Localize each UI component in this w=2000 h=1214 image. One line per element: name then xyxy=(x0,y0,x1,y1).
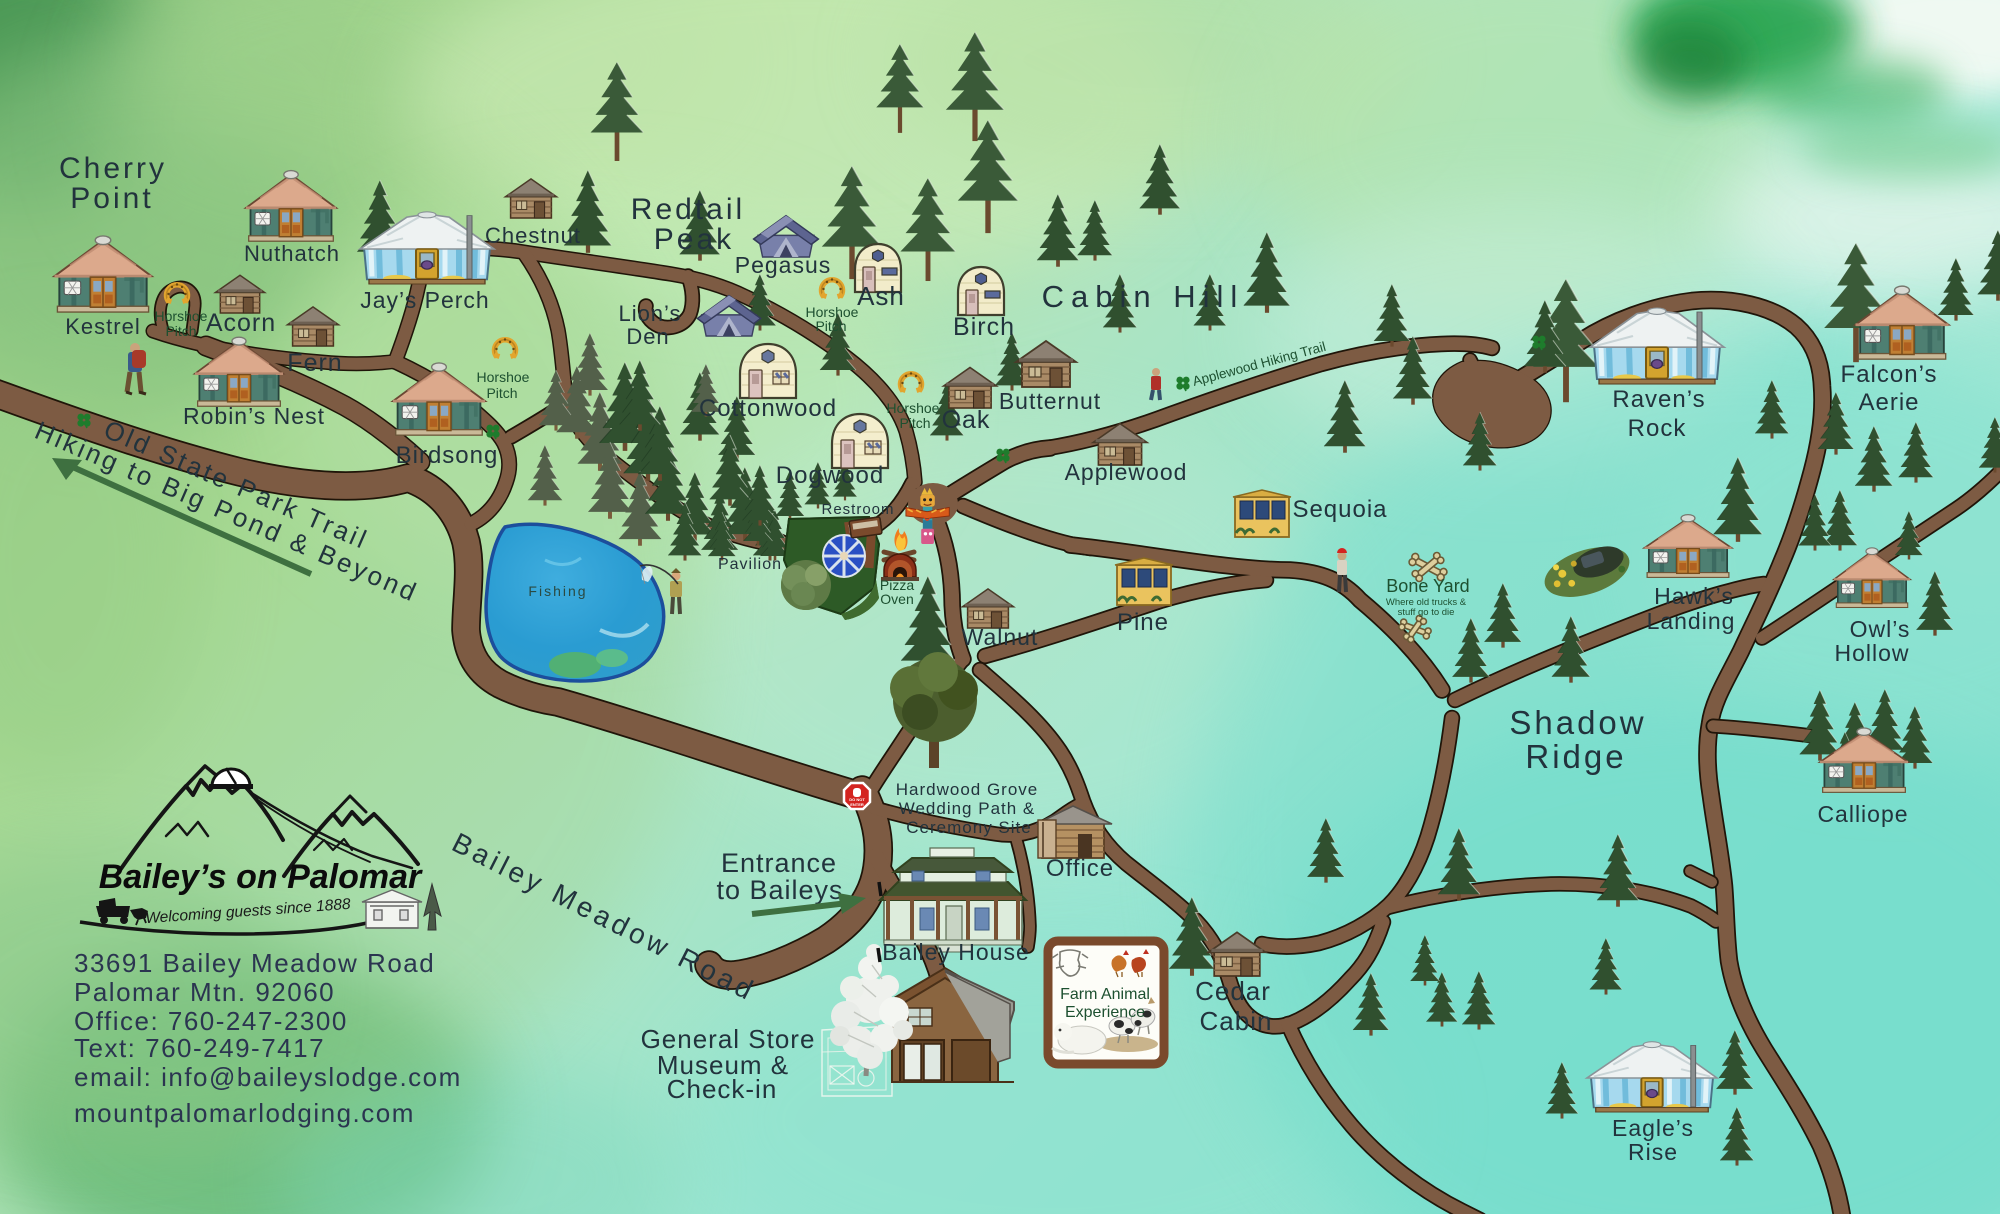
svg-text:Walnut: Walnut xyxy=(962,624,1039,650)
svg-text:Entrance: Entrance xyxy=(721,848,837,878)
svg-text:Owl’s: Owl’s xyxy=(1850,616,1911,642)
svg-text:Fern: Fern xyxy=(287,349,342,377)
svg-text:Ceremony Site: Ceremony Site xyxy=(906,818,1031,837)
svg-text:Experience: Experience xyxy=(1065,1004,1145,1021)
svg-text:Farm Animal: Farm Animal xyxy=(1060,986,1150,1003)
svg-text:Point: Point xyxy=(70,182,153,215)
svg-text:stuff go to die: stuff go to die xyxy=(1398,607,1455,618)
svg-text:Pitch: Pitch xyxy=(899,415,930,431)
svg-text:Bailey’s on Palomar: Bailey’s on Palomar xyxy=(99,858,423,896)
svg-text:Kestrel: Kestrel xyxy=(65,314,140,339)
svg-text:Applewood: Applewood xyxy=(1065,459,1188,485)
svg-text:Nuthatch: Nuthatch xyxy=(244,241,340,266)
svg-text:Check-in: Check-in xyxy=(667,1074,778,1104)
svg-text:Sequoia: Sequoia xyxy=(1292,496,1387,523)
svg-text:Bailey House: Bailey House xyxy=(882,939,1030,965)
svg-text:to Baileys: to Baileys xyxy=(716,875,843,905)
svg-text:Birch: Birch xyxy=(953,313,1015,341)
svg-text:Bone Yard: Bone Yard xyxy=(1386,576,1469,596)
svg-text:Cabin: Cabin xyxy=(1200,1006,1273,1036)
svg-text:Acorn: Acorn xyxy=(206,309,276,337)
svg-text:ENTER: ENTER xyxy=(850,802,864,807)
svg-text:Chestnut: Chestnut xyxy=(485,223,581,248)
svg-text:Oak: Oak xyxy=(942,406,991,434)
svg-text:Pine: Pine xyxy=(1117,609,1169,636)
svg-text:Robin’s Nest: Robin’s Nest xyxy=(183,403,325,429)
svg-text:Rock: Rock xyxy=(1628,415,1687,442)
svg-text:Palomar Mtn. 92060: Palomar Mtn. 92060 xyxy=(74,977,335,1007)
svg-text:Lion’s: Lion’s xyxy=(618,301,681,326)
svg-text:Falcon’s: Falcon’s xyxy=(1841,361,1938,388)
svg-text:Pitch: Pitch xyxy=(815,318,846,334)
svg-text:Oven: Oven xyxy=(880,591,913,607)
svg-text:Horshoe: Horshoe xyxy=(887,400,940,416)
svg-text:Rise: Rise xyxy=(1628,1139,1678,1165)
svg-text:Raven’s: Raven’s xyxy=(1612,386,1705,413)
svg-text:Pitch: Pitch xyxy=(165,323,196,339)
svg-text:Pegasus: Pegasus xyxy=(735,252,832,278)
svg-text:Horshoe: Horshoe xyxy=(155,308,208,324)
svg-text:Dogwood: Dogwood xyxy=(776,462,884,489)
svg-text:Eagle’s: Eagle’s xyxy=(1612,1115,1694,1141)
svg-text:Ash: Ash xyxy=(857,281,905,311)
svg-text:Shadow: Shadow xyxy=(1509,704,1646,741)
svg-text:Restroom: Restroom xyxy=(821,501,894,518)
svg-text:Cedar: Cedar xyxy=(1195,976,1271,1006)
svg-text:Den: Den xyxy=(626,324,669,349)
svg-text:Fishing: Fishing xyxy=(528,583,587,599)
svg-text:Horshoe: Horshoe xyxy=(477,369,530,385)
svg-text:Office: Office xyxy=(1046,855,1114,882)
svg-text:Office: 760-247-2300: Office: 760-247-2300 xyxy=(74,1006,348,1036)
svg-text:Cottonwood: Cottonwood xyxy=(699,395,837,422)
svg-text:Peak: Peak xyxy=(654,223,734,256)
svg-text:Pitch: Pitch xyxy=(486,385,517,401)
svg-text:Pavilion: Pavilion xyxy=(718,556,782,573)
svg-text:Jay’s Perch: Jay’s Perch xyxy=(360,287,489,313)
svg-text:Ridge: Ridge xyxy=(1525,738,1626,775)
svg-text:Hollow: Hollow xyxy=(1834,640,1909,666)
svg-text:Cherry: Cherry xyxy=(59,152,167,185)
svg-text:Butternut: Butternut xyxy=(999,388,1101,414)
svg-text:Birdsong: Birdsong xyxy=(396,442,499,469)
svg-text:Aerie: Aerie xyxy=(1858,389,1919,416)
svg-text:Redtail: Redtail xyxy=(631,193,745,226)
svg-text:Hardwood Grove: Hardwood Grove xyxy=(896,780,1039,799)
svg-text:email: info@baileyslodge.com: email: info@baileyslodge.com xyxy=(74,1062,462,1092)
svg-text:Text: 760-249-7417: Text: 760-249-7417 xyxy=(74,1033,325,1063)
svg-text:33691 Bailey Meadow Road: 33691 Bailey Meadow Road xyxy=(74,948,435,978)
svg-text:Landing: Landing xyxy=(1647,608,1736,634)
svg-text:Cabin Hill: Cabin Hill xyxy=(1042,279,1245,314)
svg-text:Calliope: Calliope xyxy=(1817,801,1908,827)
svg-text:Wedding Path &: Wedding Path & xyxy=(899,799,1036,818)
svg-text:mountpalomarlodging.com: mountpalomarlodging.com xyxy=(74,1098,415,1128)
svg-text:Hawk’s: Hawk’s xyxy=(1654,583,1734,609)
